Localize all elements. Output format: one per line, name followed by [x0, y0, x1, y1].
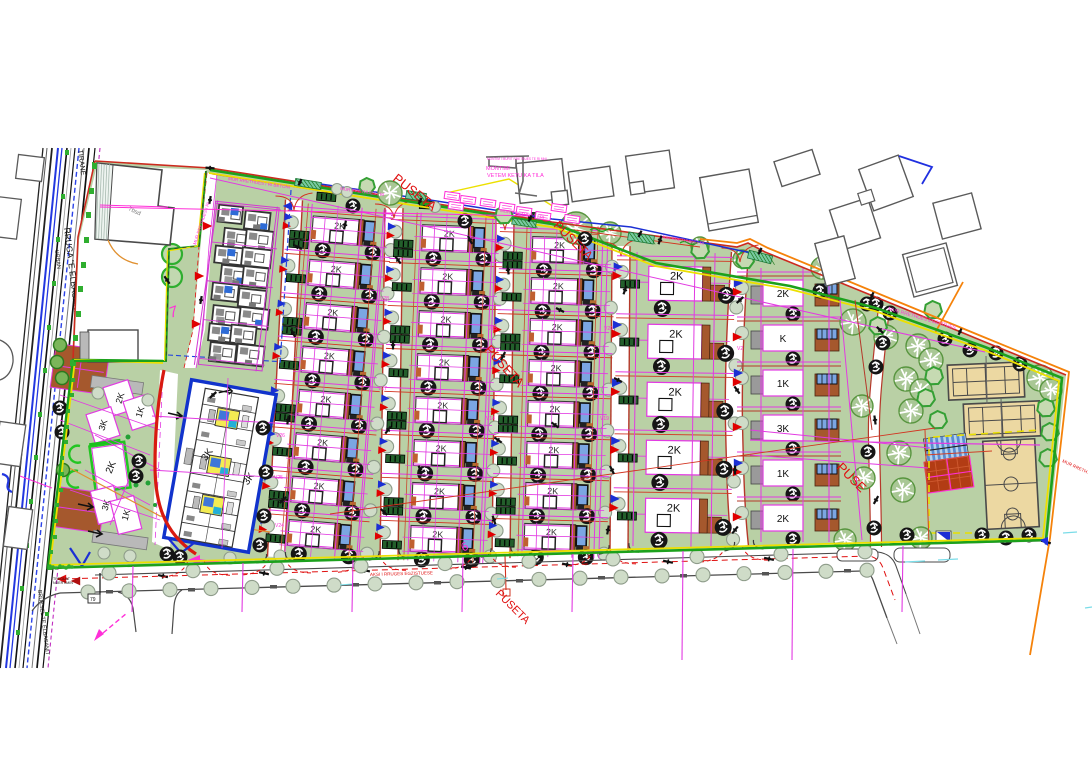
svg-text:V27: V27	[378, 386, 387, 392]
svg-text:V25: V25	[274, 475, 283, 481]
svg-text:V28: V28	[380, 296, 389, 302]
svg-text:2K: 2K	[667, 445, 681, 457]
svg-text:V24: V24	[275, 523, 284, 529]
svg-text:1K: 1K	[777, 379, 790, 390]
svg-text:2K: 2K	[670, 271, 684, 283]
svg-text:NDERTIMIN: NDERTIMIN	[53, 581, 73, 585]
svg-text:2K: 2K	[669, 329, 683, 341]
svg-text:V20: V20	[604, 326, 613, 332]
svg-text:V14: V14	[486, 416, 495, 422]
svg-text:MONTIMI: MONTIMI	[486, 166, 510, 172]
svg-text:V2: V2	[737, 346, 743, 352]
svg-text:1K: 1K	[777, 469, 790, 480]
svg-text:2K: 2K	[668, 387, 682, 399]
svg-text:MONTIM I MURIT RRETHUES TE RI: MONTIM I MURIT RRETHUES TE RI MHI	[487, 157, 547, 161]
svg-text:V19: V19	[600, 416, 609, 422]
svg-text:2K: 2K	[667, 503, 681, 515]
svg-text:79: 79	[90, 597, 96, 603]
svg-text:VETEM KETU KA TILA: VETEM KETU KA TILA	[487, 173, 544, 179]
svg-text:2K: 2K	[777, 514, 790, 525]
svg-text:V26: V26	[276, 433, 285, 439]
svg-text:K: K	[780, 334, 787, 345]
svg-text:2K: 2K	[777, 289, 790, 300]
svg-text:V15: V15	[488, 326, 497, 332]
